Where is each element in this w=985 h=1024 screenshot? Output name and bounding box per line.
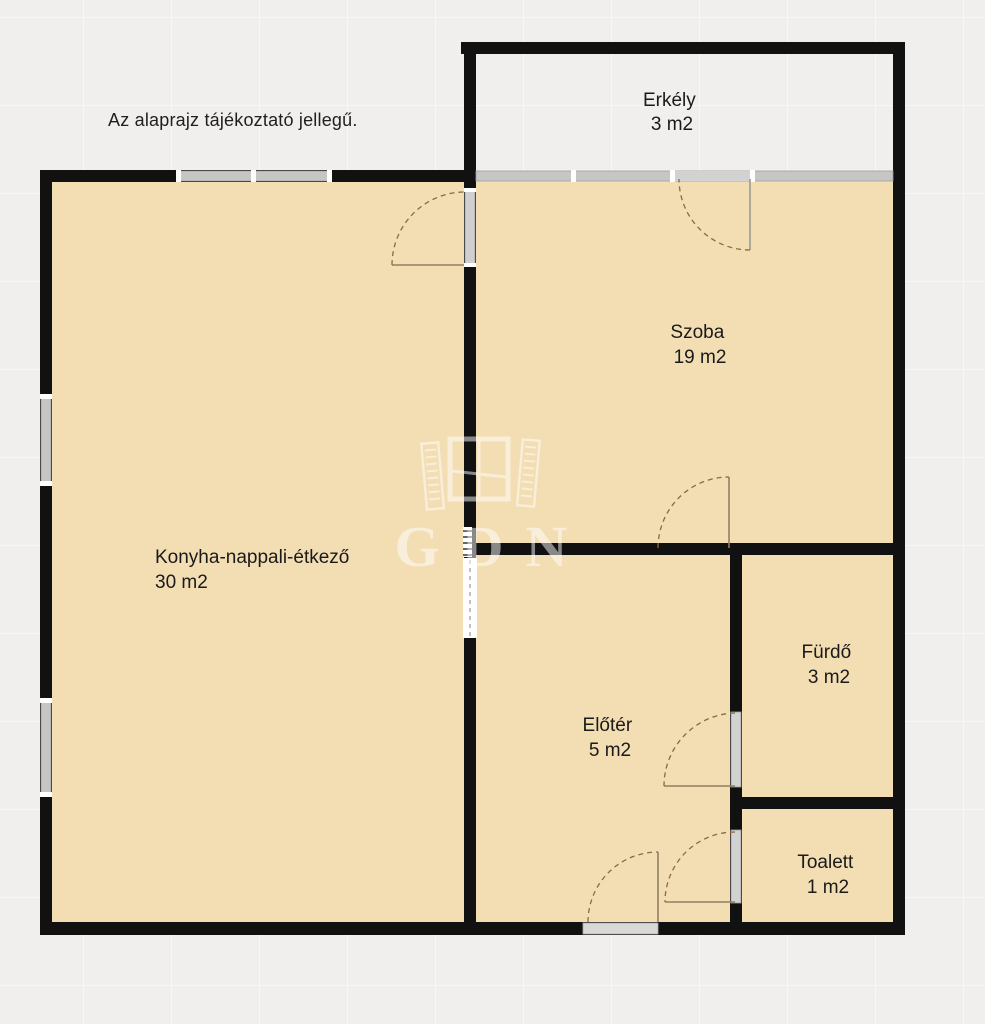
window-tick (40, 792, 52, 797)
window-tick (464, 188, 476, 192)
toalett-door-opening (731, 830, 741, 903)
window-tick (464, 263, 476, 267)
window-tick (40, 698, 52, 703)
wall-left (40, 170, 52, 935)
balcony-door-opening (672, 171, 752, 181)
watermark-text: GDN (395, 514, 590, 579)
window-tick (327, 170, 332, 182)
window-tick (670, 170, 675, 182)
wall-balcony-top (461, 42, 905, 54)
left-window-2 (41, 700, 51, 795)
floorplan-canvas: GDN Erkély 3 m2 Szoba 19 m2 Konyha-nappa… (0, 0, 985, 1024)
window-tick (40, 394, 52, 399)
window-tick (571, 170, 576, 182)
window-tick (176, 170, 181, 182)
furdo-door-opening (731, 712, 741, 787)
wall-furdo-toalett (730, 797, 905, 809)
window-tick (251, 170, 256, 182)
wall-mid-vertical (464, 42, 476, 935)
left-window-1 (41, 396, 51, 484)
window-tick (40, 481, 52, 486)
konyha-szoba-glass-door (465, 190, 475, 265)
disclaimer-text: Az alaprajz tájékoztató jellegű. (108, 110, 358, 131)
entrance-door-opening (583, 923, 658, 934)
floorplan-drawing: GDN Erkély 3 m2 Szoba 19 m2 Konyha-nappa… (0, 0, 985, 1024)
